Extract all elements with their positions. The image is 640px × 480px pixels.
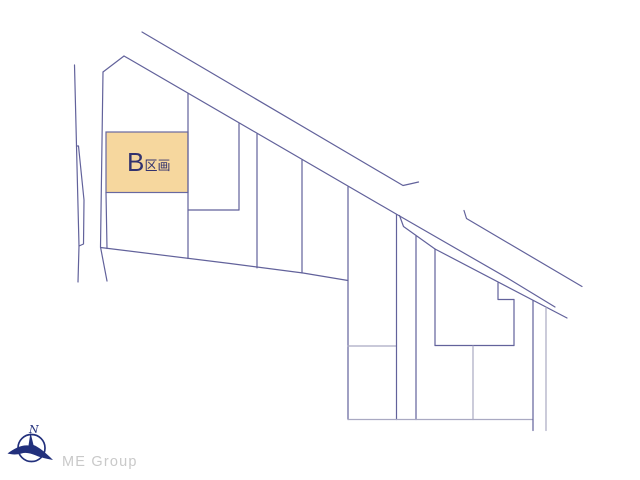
parcel-boundary-lines [75,32,583,431]
line-road-branch-right [464,211,582,287]
parcel-b-label-main: B [127,147,144,177]
site-plan-svg: B 区画 N ME Group [0,0,640,480]
compass-icon: N [8,423,54,462]
compass-north-label: N [28,423,39,436]
compass-needle [8,433,54,461]
line-parcel-b-left-extension [106,193,107,249]
line-west-boundary-outer [75,65,80,282]
line-road-lower-edge [124,56,555,307]
brand-logo-text: ME Group [62,454,138,470]
parcel-b-label-suffix: 区画 [145,158,171,173]
line-apex-left-edge [103,56,124,72]
site-plan-page: B 区画 N ME Group [0,0,640,480]
line-south-boundary-diagonal [101,248,349,281]
